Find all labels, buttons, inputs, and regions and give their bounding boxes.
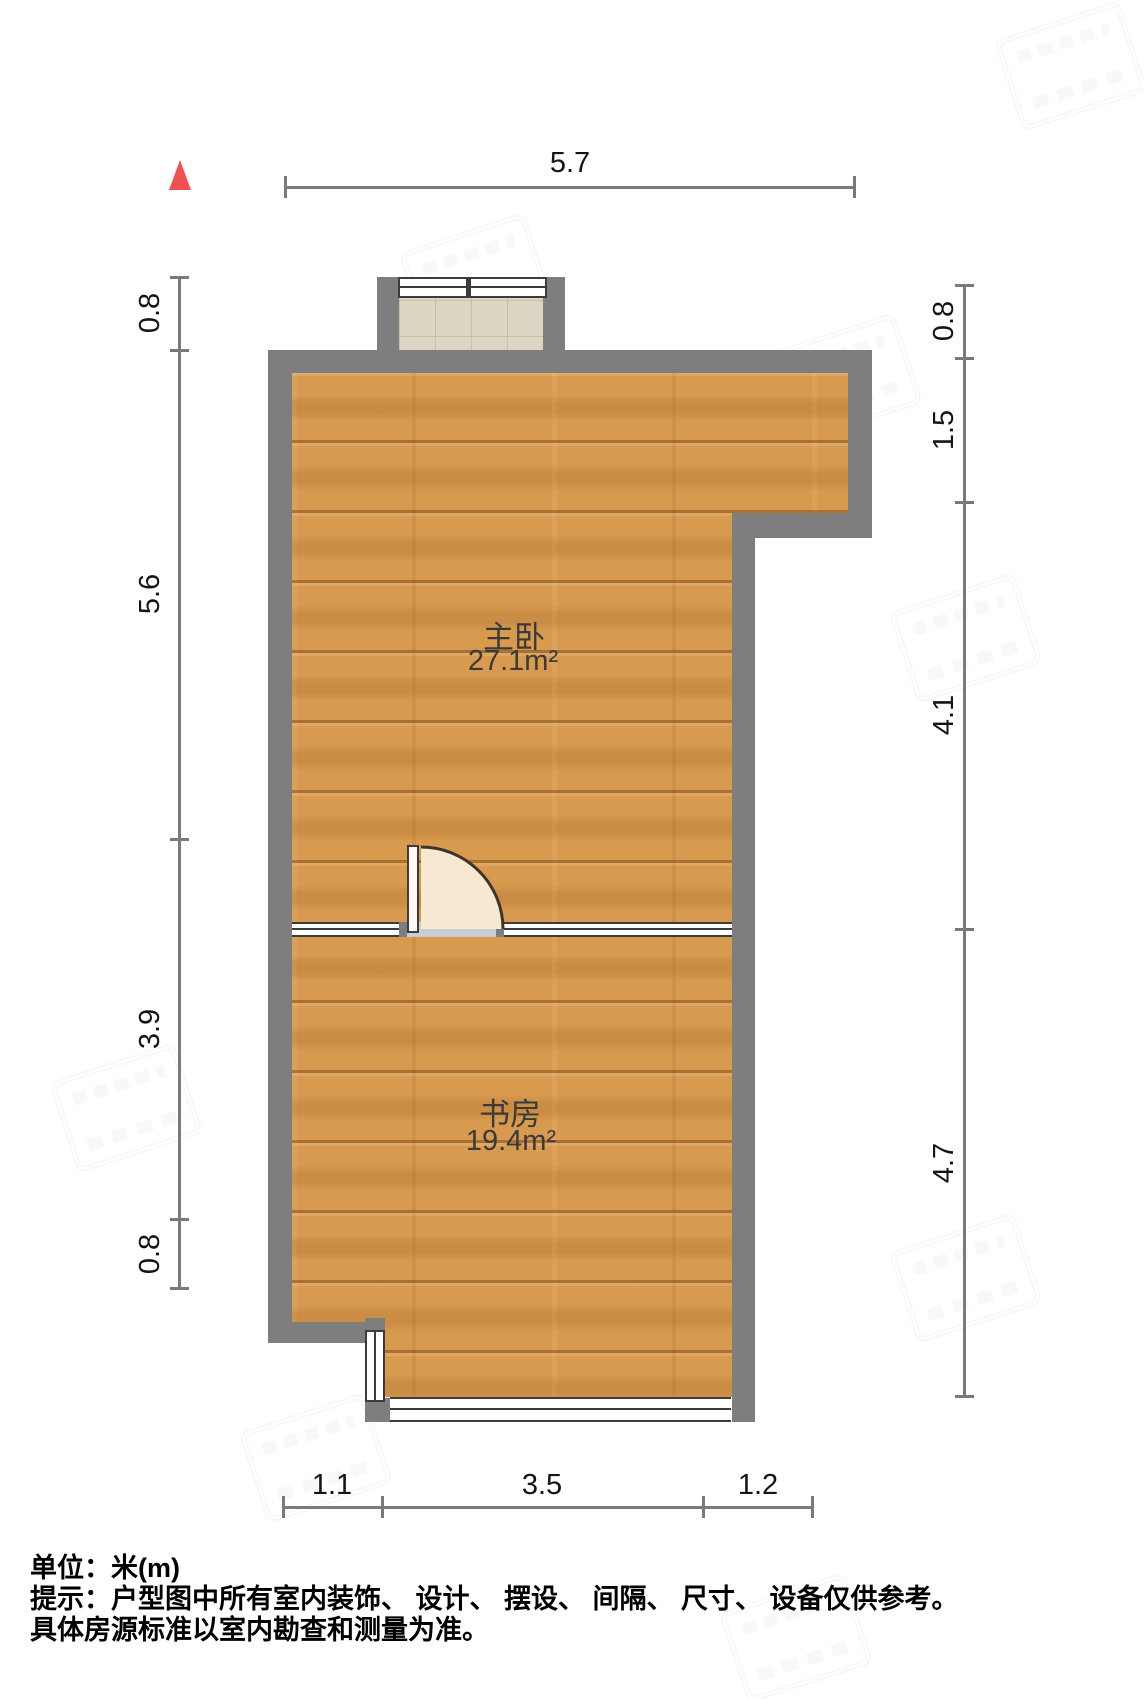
window-divider [466,277,471,298]
dimension-tick [284,176,287,198]
unit-note: 单位：米(m) [30,1553,959,1584]
wall-bay-top-block [365,1318,385,1330]
dimension-tick [955,928,974,931]
dimension-tick [282,1496,285,1518]
bay-side-window [365,1330,385,1402]
dimension-line-top [285,186,855,189]
dimension-label-right: 4.7 [929,1131,959,1195]
watermark-logo [993,0,1144,132]
dimension-label-bottom: 1.1 [300,1470,364,1500]
dimension-tick [170,838,189,841]
wall-right-upper [848,350,872,538]
dimension-label-bottom: 1.2 [726,1470,790,1500]
dimension-tick [955,501,974,504]
dimension-line-left [178,277,181,1289]
dimension-label-right: 1.5 [929,398,959,462]
dimension-tick [170,349,189,352]
dimension-tick [170,1218,189,1221]
door-jamb-right [496,922,504,937]
room-area-study: 19.4m² [431,1125,591,1158]
dimension-label-top: 5.7 [538,148,602,178]
room-area-master-bedroom: 27.1m² [433,645,593,678]
dimension-line-bottom [283,1506,813,1509]
dimension-label-bottom: 3.5 [510,1470,574,1500]
dimension-label-right: 0.8 [929,289,959,353]
room-partition-right [504,922,732,937]
dimension-tick [170,276,189,279]
disclaimer-line-1: 提示：户型图中所有室内装饰、 设计、 摆设、 间隔、 尺寸、 设备仅供参考。 [30,1584,959,1615]
dimension-label-left: 5.6 [135,562,165,626]
watermark-logo [888,572,1043,704]
dimension-tick [811,1496,814,1518]
balcony-window [398,277,547,298]
dimension-label-right: 4.1 [929,683,959,747]
footer-notes: 单位：米(m) 提示：户型图中所有室内装饰、 设计、 摆设、 间隔、 尺寸、 设… [30,1553,959,1646]
wall-right-lower [732,513,755,1422]
dimension-tick [955,1395,974,1398]
dimension-label-left: 0.8 [135,1222,165,1286]
floorplan-page: 主卧 27.1m² 书房 19.4m² 5.7 0.8 5.6 3.9 0.8 … [0,0,1144,1699]
watermark-logo [888,1212,1043,1344]
room-partition-left [292,922,399,937]
bay-bottom-window [390,1397,731,1422]
dimension-line-right [963,285,966,1397]
dimension-tick [381,1496,384,1518]
dimension-label-left: 3.9 [135,997,165,1061]
north-arrow-icon [169,160,191,190]
dimension-tick [853,176,856,198]
wall-left [268,350,292,1343]
dimension-tick [955,284,974,287]
wall-balcony-left [377,277,399,350]
door-leaf [407,845,419,933]
wall-top [268,350,872,373]
dimension-tick [702,1496,705,1518]
dimension-tick [170,1287,189,1290]
dimension-label-left: 0.8 [135,281,165,345]
disclaimer-line-2: 具体房源标准以室内勘查和测量为准。 [30,1615,959,1646]
dimension-tick [955,357,974,360]
door-jamb-left [399,922,407,937]
